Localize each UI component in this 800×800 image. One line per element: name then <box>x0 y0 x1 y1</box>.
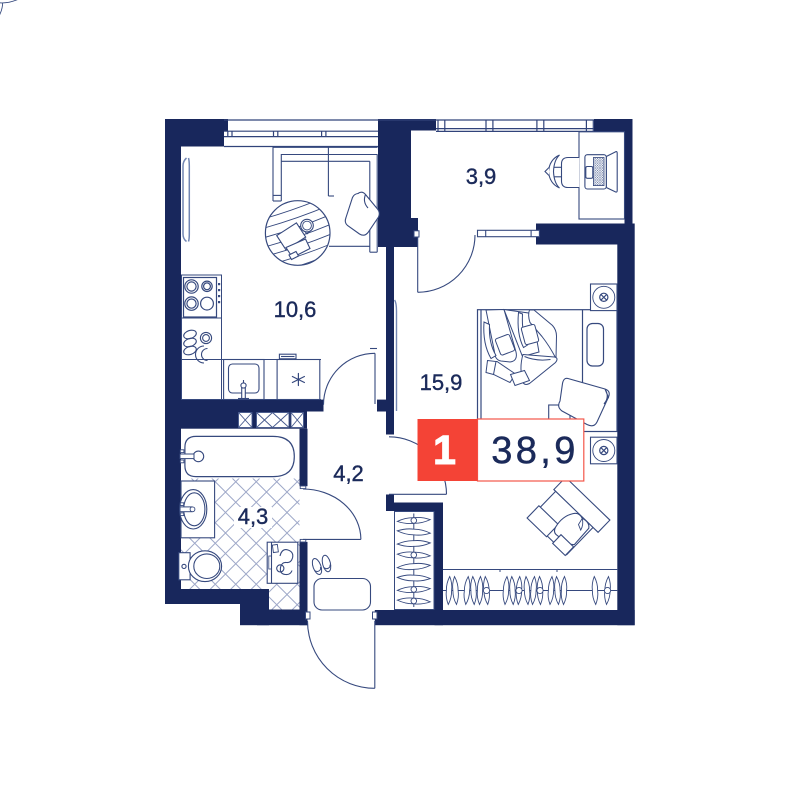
svg-text:4,3: 4,3 <box>238 504 269 529</box>
svg-text:38,9: 38,9 <box>491 430 579 472</box>
svg-text:15,9: 15,9 <box>420 370 463 395</box>
svg-text:1: 1 <box>433 427 456 473</box>
svg-text:4,2: 4,2 <box>333 461 364 486</box>
svg-text:10,6: 10,6 <box>274 297 317 322</box>
svg-text:3,9: 3,9 <box>466 164 497 189</box>
